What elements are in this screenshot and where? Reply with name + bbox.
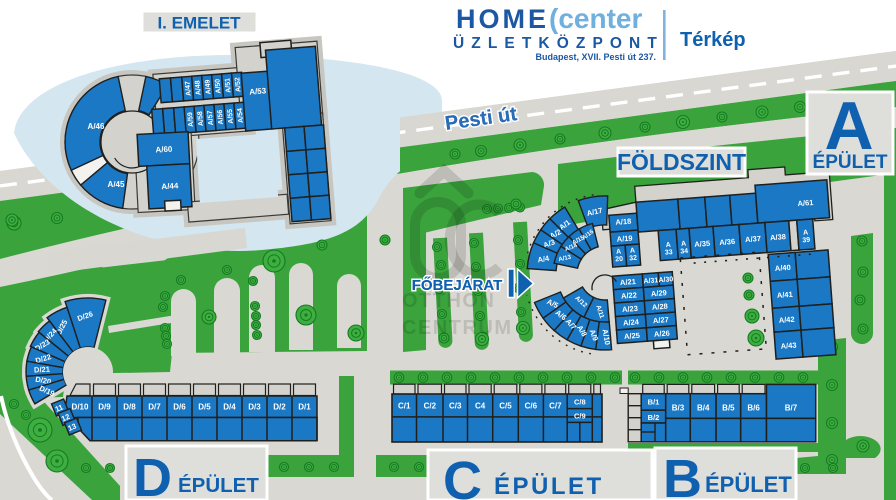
svg-text:D/9: D/9 xyxy=(98,403,111,412)
svg-text:D/6: D/6 xyxy=(173,403,186,412)
svg-text:A/26: A/26 xyxy=(654,329,670,339)
svg-text:ÉPÜLET: ÉPÜLET xyxy=(813,151,888,173)
svg-text:B/5: B/5 xyxy=(722,404,735,413)
svg-text:A/41: A/41 xyxy=(777,290,793,300)
svg-text:A/19: A/19 xyxy=(616,234,632,244)
svg-text:D/7: D/7 xyxy=(148,403,161,412)
svg-text:D/5: D/5 xyxy=(198,403,211,412)
svg-text:D/10: D/10 xyxy=(72,403,89,412)
svg-text:C/8: C/8 xyxy=(574,398,586,407)
svg-text:D/3: D/3 xyxy=(248,403,261,412)
svg-text:(center: (center xyxy=(549,3,642,34)
svg-text:A/18: A/18 xyxy=(615,217,631,227)
svg-text:C/9: C/9 xyxy=(574,412,586,421)
svg-text:C: C xyxy=(443,451,482,500)
svg-text:C/6: C/6 xyxy=(525,402,538,411)
svg-text:ÜZLETKÖZPONT: ÜZLETKÖZPONT xyxy=(453,35,664,52)
svg-text:A/21: A/21 xyxy=(620,277,636,287)
svg-text:A/28: A/28 xyxy=(652,302,668,312)
svg-text:C4: C4 xyxy=(475,402,486,411)
svg-text:B/7: B/7 xyxy=(785,404,798,413)
svg-text:A/37: A/37 xyxy=(745,234,761,244)
svg-text:D/8: D/8 xyxy=(123,403,136,412)
svg-text:A/29: A/29 xyxy=(651,288,667,298)
svg-text:D/2: D/2 xyxy=(273,403,286,412)
svg-text:CENTRUM: CENTRUM xyxy=(402,317,513,339)
svg-text:C/3: C/3 xyxy=(449,402,462,411)
svg-text:FÖLDSZINT: FÖLDSZINT xyxy=(617,149,746,175)
svg-text:A/45: A/45 xyxy=(108,180,125,189)
svg-text:C/1: C/1 xyxy=(398,402,411,411)
svg-text:FŐBEJÁRAT: FŐBEJÁRAT xyxy=(412,276,503,294)
svg-text:A/31: A/31 xyxy=(643,277,658,285)
svg-text:A/23: A/23 xyxy=(622,304,638,314)
svg-text:A/46: A/46 xyxy=(88,122,105,131)
svg-text:A/40: A/40 xyxy=(775,263,791,273)
svg-text:ÉPÜLET: ÉPÜLET xyxy=(178,474,259,497)
svg-text:A/25: A/25 xyxy=(624,331,640,341)
svg-text:A/61: A/61 xyxy=(797,198,813,208)
svg-text:A/27: A/27 xyxy=(653,315,669,325)
svg-text:D: D xyxy=(133,448,172,500)
svg-text:A/43: A/43 xyxy=(780,341,796,351)
svg-text:C/2: C/2 xyxy=(424,402,437,411)
svg-text:A/35: A/35 xyxy=(694,239,710,249)
svg-text:C/5: C/5 xyxy=(499,402,512,411)
svg-text:Budapest, XVII. Pesti út 237.: Budapest, XVII. Pesti út 237. xyxy=(535,52,656,62)
svg-text:A/42: A/42 xyxy=(778,315,794,325)
svg-text:B/2: B/2 xyxy=(648,413,660,422)
svg-text:A/36: A/36 xyxy=(719,237,735,247)
svg-text:A/22: A/22 xyxy=(621,290,637,300)
svg-text:B/4: B/4 xyxy=(697,404,710,413)
svg-text:HOME: HOME xyxy=(456,4,549,34)
svg-text:B/1: B/1 xyxy=(648,398,660,407)
svg-text:A/38: A/38 xyxy=(770,232,786,242)
svg-text:A/44: A/44 xyxy=(161,181,179,191)
svg-text:B/6: B/6 xyxy=(747,404,760,413)
svg-text:ÉPÜLET: ÉPÜLET xyxy=(494,472,604,500)
svg-text:A/60: A/60 xyxy=(155,145,173,155)
svg-text:D/4: D/4 xyxy=(223,403,236,412)
svg-text:ÉPÜLET: ÉPÜLET xyxy=(705,472,792,497)
svg-text:D/21: D/21 xyxy=(34,365,50,375)
svg-text:A/53: A/53 xyxy=(249,86,267,96)
svg-text:C/7: C/7 xyxy=(549,402,562,411)
svg-text:Térkép: Térkép xyxy=(680,29,746,51)
svg-text:B/3: B/3 xyxy=(672,404,685,413)
svg-text:B: B xyxy=(663,449,702,500)
svg-text:I. EMELET: I. EMELET xyxy=(157,14,241,33)
svg-text:D/1: D/1 xyxy=(298,403,311,412)
svg-text:A/30: A/30 xyxy=(658,276,673,284)
svg-text:A/24: A/24 xyxy=(623,317,640,327)
